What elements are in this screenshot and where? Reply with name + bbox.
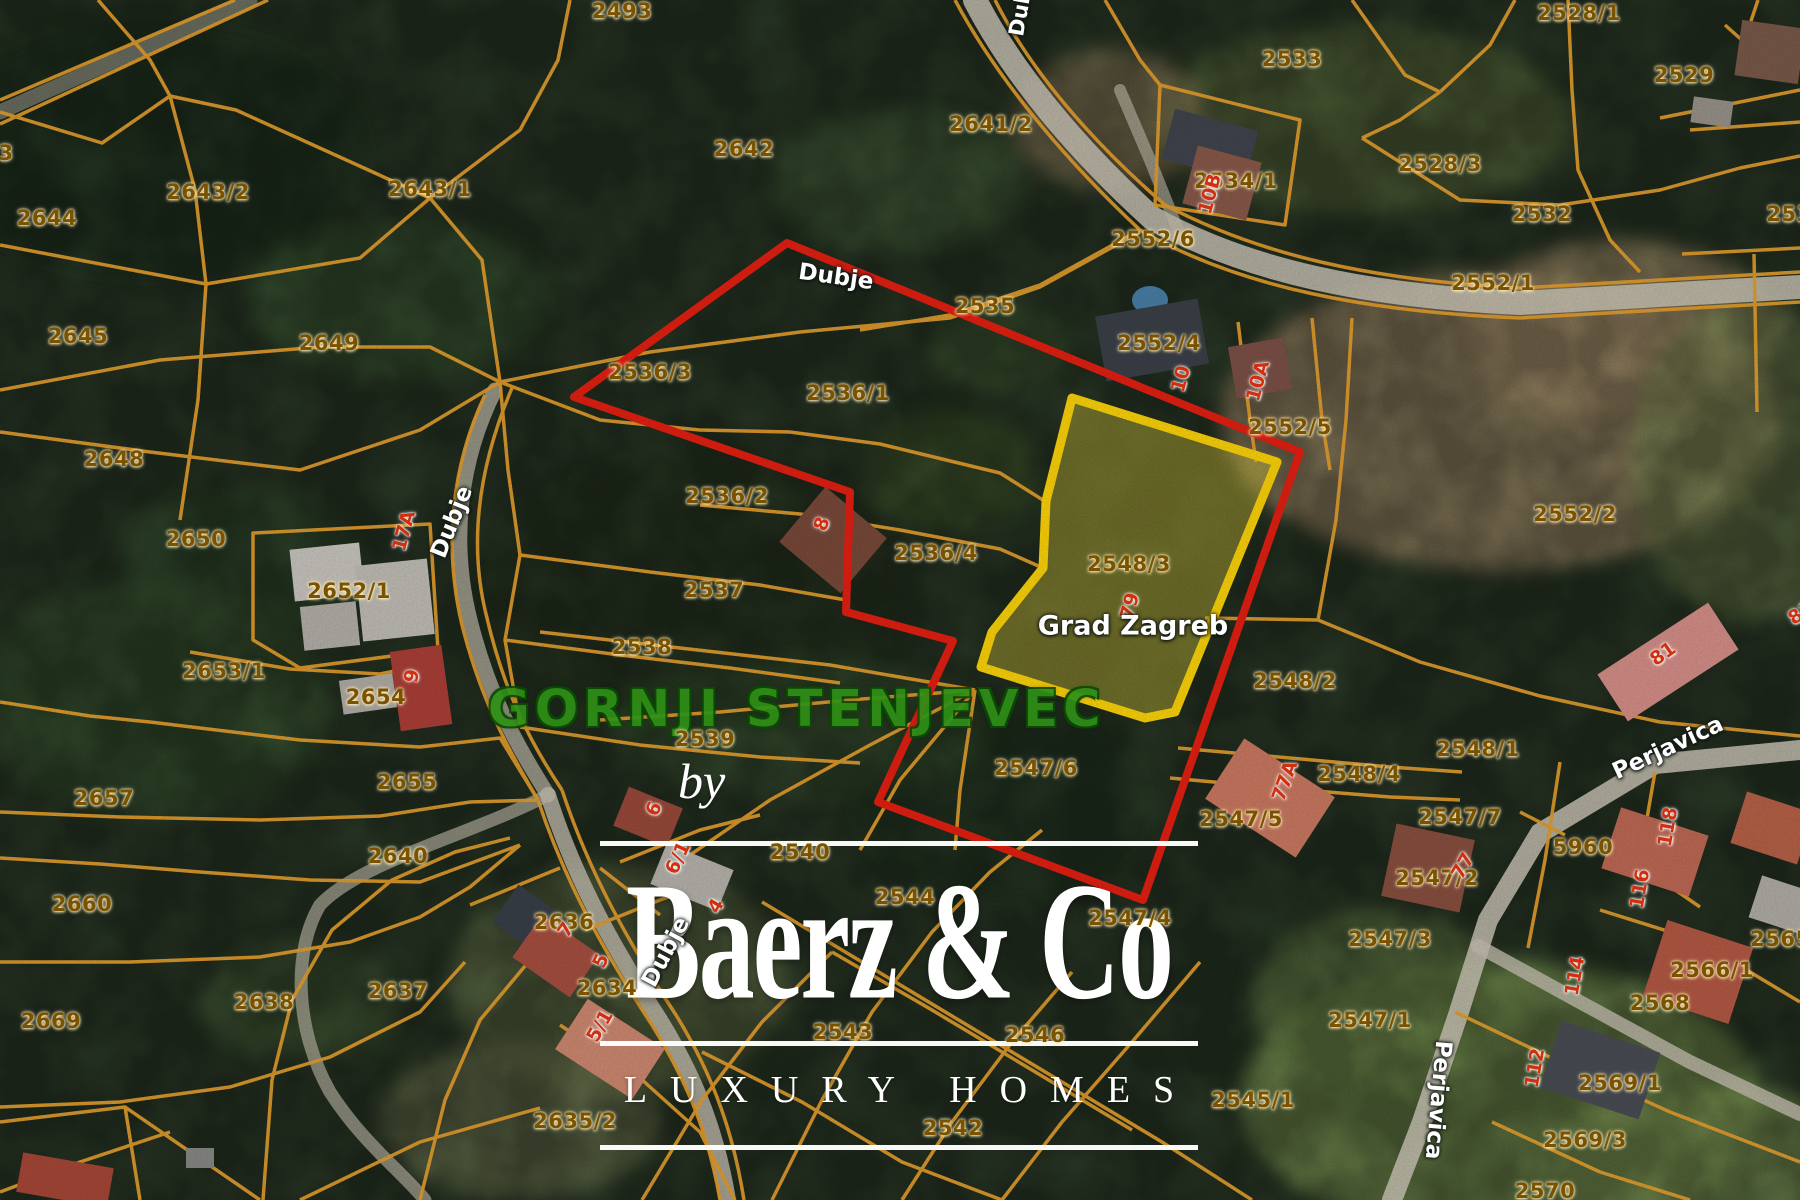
- parcel-number-label: 2528/1: [1537, 1, 1621, 25]
- parcel-number-label: 5960: [1553, 835, 1613, 859]
- parcel-number-label: 2649: [299, 331, 359, 355]
- label-layer: GORNJI STENJEVEC by Baerz & Co LUXURY HO…: [0, 0, 1800, 1200]
- street-name-label: Dubje: [1004, 0, 1040, 38]
- parcel-number-label: 2641/2: [949, 112, 1033, 136]
- parcel-number-label: 2536/3: [608, 360, 692, 384]
- parcel-number-label: 2536/2: [685, 484, 769, 508]
- parcel-number-label: 2565/1: [1750, 927, 1800, 951]
- parcel-number-label: 2552/6: [1111, 227, 1195, 251]
- parcel-number-label: 2547/5: [1199, 807, 1283, 831]
- house-number-label: 118: [1654, 806, 1683, 849]
- parcel-number-label: 2566/1: [1670, 958, 1754, 982]
- street-name-label: Grad Zagreb: [1038, 611, 1229, 642]
- street-name-label: Dubje: [426, 482, 478, 562]
- parcel-number-label: 2545/1: [1211, 1088, 1295, 1112]
- house-number-label: 116: [1626, 868, 1655, 911]
- parcel-number-label: 2638: [234, 990, 294, 1014]
- street-name-label: Perjavica: [1608, 711, 1727, 785]
- parcel-number-label: 253: [1766, 202, 1800, 226]
- parcel-number-label: 2552/1: [1451, 271, 1535, 295]
- parcel-number-label: 2648: [84, 447, 144, 471]
- parcel-number-label: 2548/4: [1317, 762, 1401, 786]
- house-number-label: 17A: [388, 508, 420, 553]
- parcel-number-label: 2643/2: [166, 180, 250, 204]
- parcel-number-label: 2548/1: [1436, 737, 1520, 761]
- parcel-number-label: 2544: [875, 885, 935, 909]
- parcel-number-label: 2642: [714, 137, 774, 161]
- parcel-number-label: 2542: [923, 1116, 983, 1140]
- parcel-number-label: 2644: [17, 206, 77, 230]
- house-number-label: 6: [641, 798, 667, 819]
- parcel-number-label: 2547/1: [1328, 1008, 1412, 1032]
- house-number-label: 81: [1646, 637, 1680, 670]
- parcel-number-label: 2652/1: [307, 579, 391, 603]
- parcel-number-label: 2635/2: [533, 1109, 617, 1133]
- parcel-number-label: 2660: [52, 892, 112, 916]
- watermark-tagline: LUXURY HOMES: [600, 1068, 1198, 1112]
- parcel-number-label: 2547/4: [1088, 906, 1172, 930]
- district-name-label: GORNJI STENJEVEC: [488, 680, 1105, 739]
- parcel-number-label: 2653/1: [182, 659, 266, 683]
- parcel-number-label: 2533: [1262, 47, 1322, 71]
- parcel-number-label: 2643/1: [388, 177, 472, 201]
- parcel-number-label: 2568: [1630, 991, 1690, 1015]
- parcel-number-label: 2669: [21, 1009, 81, 1033]
- parcel-number-label: 3: [0, 141, 14, 165]
- watermark-by-text: by: [678, 752, 725, 810]
- house-number-label: 10: [1167, 363, 1195, 394]
- parcel-number-label: 2493: [592, 0, 652, 23]
- parcel-number-label: 2570: [1515, 1179, 1575, 1200]
- house-number-label: 8: [809, 514, 834, 534]
- parcel-number-label: 2650: [166, 527, 226, 551]
- parcel-number-label: 2532: [1512, 202, 1572, 226]
- parcel-number-label: 2569/3: [1543, 1128, 1627, 1152]
- parcel-number-label: 2535: [955, 294, 1015, 318]
- parcel-number-label: 2536/1: [806, 381, 890, 405]
- parcel-number-label: 2640: [368, 844, 428, 868]
- parcel-number-label: 2645: [48, 324, 108, 348]
- parcel-number-label: 2538: [612, 635, 672, 659]
- parcel-number-label: 2552/4: [1117, 331, 1201, 355]
- house-number-label: 77A: [1268, 758, 1303, 804]
- parcel-number-label: 2547/3: [1348, 927, 1432, 951]
- parcel-number-label: 2654: [346, 685, 406, 709]
- parcel-number-label: 2537: [684, 578, 744, 602]
- satellite-cadastral-map[interactable]: GORNJI STENJEVEC by Baerz & Co LUXURY HO…: [0, 0, 1800, 1200]
- parcel-number-label: 2569/1: [1578, 1071, 1662, 1095]
- parcel-number-label: 2547/7: [1418, 805, 1502, 829]
- parcel-number-label: 2528/3: [1398, 152, 1482, 176]
- watermark-rule-bottom: [600, 1145, 1198, 1150]
- watermark-rule-middle: [600, 1041, 1198, 1046]
- street-name-label: Perjavica: [1420, 1039, 1456, 1160]
- parcel-number-label: 2637: [368, 979, 428, 1003]
- parcel-number-label: 2539: [675, 727, 735, 751]
- house-number-label: 9: [400, 668, 424, 685]
- parcel-number-label: 2540: [770, 840, 830, 864]
- parcel-number-label: 2657: [74, 786, 134, 810]
- parcel-number-label: 2655: [377, 770, 437, 794]
- house-number-label: 112: [1521, 1047, 1550, 1090]
- parcel-number-label: 2543: [813, 1020, 873, 1044]
- parcel-number-label: 2547/6: [994, 756, 1078, 780]
- watermark-brand: Baerz & Co: [600, 858, 1198, 1026]
- parcel-number-label: 2548/3: [1087, 552, 1171, 576]
- parcel-number-label: 2546: [1005, 1023, 1065, 1047]
- parcel-number-label: 2548/2: [1253, 669, 1337, 693]
- house-number-label: 81: [1784, 596, 1800, 629]
- parcel-number-label: 2634: [577, 976, 637, 1000]
- street-name-label: Dubje: [797, 259, 875, 295]
- house-number-label: 114: [1561, 955, 1590, 998]
- parcel-number-label: 2552/5: [1248, 415, 1332, 439]
- parcel-number-label: 2529: [1654, 63, 1714, 87]
- parcel-number-label: 2536/4: [894, 541, 978, 565]
- parcel-number-label: 2552/2: [1533, 502, 1617, 526]
- house-number-label: 10A: [1242, 358, 1274, 403]
